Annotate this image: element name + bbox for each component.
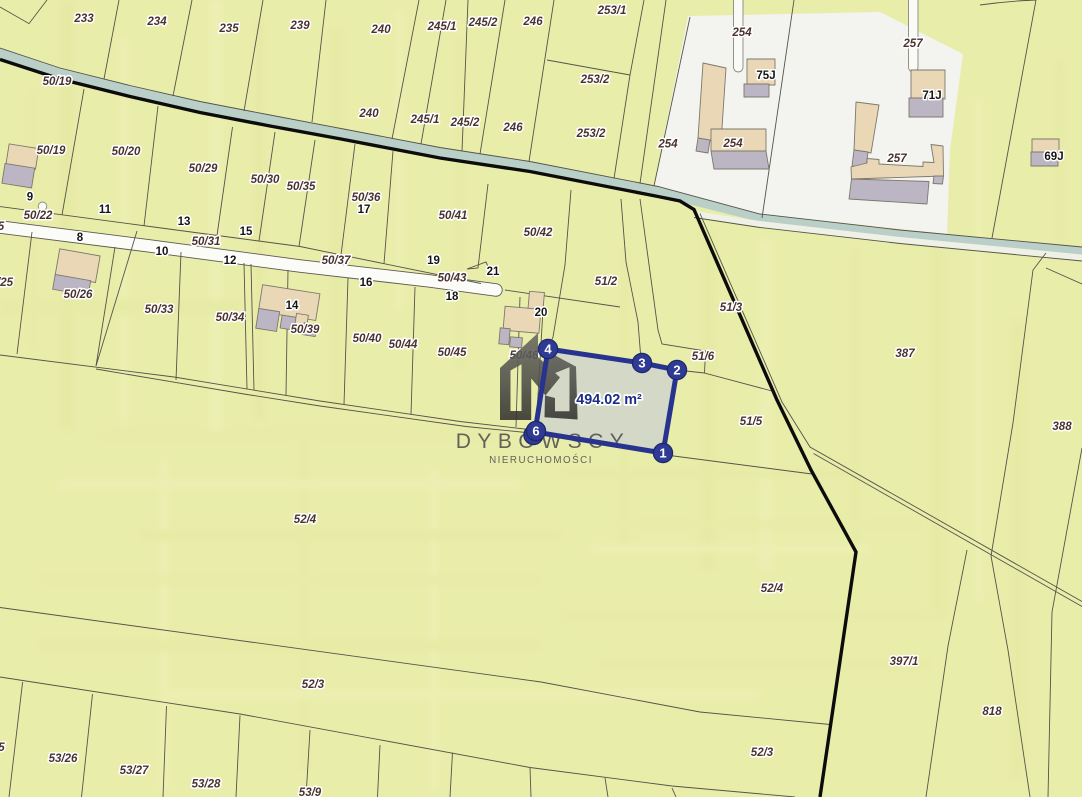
svg-text:51/5: 51/5 — [740, 416, 763, 428]
svg-text:50/33: 50/33 — [145, 304, 174, 316]
svg-text:50/40: 50/40 — [353, 333, 382, 345]
svg-text:50/37: 50/37 — [322, 255, 351, 267]
svg-text:235: 235 — [218, 23, 239, 35]
svg-text:246: 246 — [522, 16, 543, 28]
svg-text:NIERUCHOMOŚCI: NIERUCHOMOŚCI — [489, 454, 593, 466]
svg-text:19: 19 — [427, 255, 440, 267]
svg-text:245/1: 245/1 — [427, 21, 457, 33]
svg-text:257: 257 — [886, 153, 907, 165]
svg-text:50/29: 50/29 — [189, 163, 218, 175]
svg-text:4: 4 — [544, 342, 552, 357]
svg-text:240: 240 — [358, 108, 379, 120]
svg-text:53/26: 53/26 — [49, 753, 78, 765]
svg-text:12: 12 — [224, 255, 237, 267]
svg-text:50/26: 50/26 — [64, 289, 93, 301]
svg-text:15: 15 — [240, 226, 253, 238]
svg-text:233: 233 — [73, 13, 94, 25]
svg-text:50/19: 50/19 — [43, 76, 72, 88]
svg-text:6: 6 — [532, 424, 539, 439]
svg-text:50/35: 50/35 — [287, 181, 316, 193]
svg-text:13: 13 — [178, 216, 191, 228]
svg-text:52/4: 52/4 — [294, 514, 317, 526]
svg-text:253/2: 253/2 — [576, 128, 606, 140]
svg-text:52/4: 52/4 — [761, 583, 784, 595]
svg-text:10: 10 — [156, 246, 169, 258]
svg-text:257: 257 — [902, 38, 923, 50]
svg-text:50/19: 50/19 — [37, 145, 66, 157]
svg-text:71J: 71J — [922, 90, 941, 102]
svg-text:14: 14 — [286, 300, 299, 312]
svg-text:50/41: 50/41 — [439, 210, 468, 222]
svg-text:1: 1 — [659, 446, 666, 461]
svg-text:253/2: 253/2 — [580, 74, 610, 86]
svg-text:254: 254 — [657, 139, 678, 151]
svg-text:52/3: 52/3 — [751, 747, 774, 759]
svg-text:21: 21 — [487, 266, 500, 278]
svg-text:18: 18 — [446, 291, 459, 303]
svg-text:51/3: 51/3 — [720, 302, 743, 314]
svg-text:234: 234 — [146, 16, 167, 28]
svg-text:5: 5 — [0, 742, 5, 754]
svg-text:51/6: 51/6 — [692, 351, 715, 363]
svg-text:16: 16 — [360, 277, 373, 289]
svg-text:50/45: 50/45 — [438, 347, 467, 359]
svg-text:50/36: 50/36 — [352, 192, 381, 204]
svg-text:53/27: 53/27 — [120, 765, 149, 777]
svg-text:9: 9 — [27, 192, 33, 204]
svg-text:50/30: 50/30 — [251, 174, 280, 186]
svg-text:253/1: 253/1 — [597, 5, 627, 17]
svg-text:50/39: 50/39 — [291, 324, 320, 336]
svg-text:239: 239 — [289, 20, 310, 32]
svg-text:53/28: 53/28 — [192, 779, 221, 791]
svg-text:20: 20 — [535, 307, 548, 319]
svg-text:53/9: 53/9 — [299, 787, 322, 797]
svg-text:50/34: 50/34 — [216, 312, 245, 324]
svg-text:5: 5 — [0, 221, 5, 233]
svg-text:8: 8 — [77, 232, 84, 244]
svg-text:50/44: 50/44 — [389, 339, 418, 351]
svg-text:240: 240 — [370, 24, 391, 36]
svg-text:254: 254 — [731, 27, 752, 39]
svg-text:245/2: 245/2 — [450, 117, 480, 129]
svg-text:50/20: 50/20 — [112, 146, 141, 158]
svg-text:246: 246 — [502, 122, 523, 134]
svg-text:52/3: 52/3 — [302, 679, 325, 691]
svg-text:245/2: 245/2 — [468, 17, 498, 29]
svg-text:50/42: 50/42 — [524, 227, 553, 239]
svg-text:69J: 69J — [1044, 151, 1063, 163]
svg-text:50/43: 50/43 — [438, 273, 467, 285]
svg-text:397/1: 397/1 — [890, 656, 919, 668]
svg-text:387: 387 — [895, 348, 915, 360]
svg-text:75J: 75J — [756, 70, 775, 82]
svg-text:51/2: 51/2 — [595, 276, 618, 288]
svg-text:3: 3 — [638, 356, 645, 371]
svg-text:494.02 m²: 494.02 m² — [576, 392, 642, 408]
svg-text:2: 2 — [673, 363, 680, 378]
svg-text:17: 17 — [358, 204, 371, 216]
svg-text:388: 388 — [1052, 421, 1072, 433]
svg-text:818: 818 — [982, 706, 1002, 718]
svg-text:50/22: 50/22 — [24, 210, 53, 222]
svg-text:254: 254 — [722, 138, 743, 150]
svg-text:11: 11 — [99, 204, 112, 216]
svg-text:245/1: 245/1 — [410, 114, 440, 126]
svg-text:/25: /25 — [0, 277, 14, 289]
svg-text:50/31: 50/31 — [192, 236, 221, 248]
